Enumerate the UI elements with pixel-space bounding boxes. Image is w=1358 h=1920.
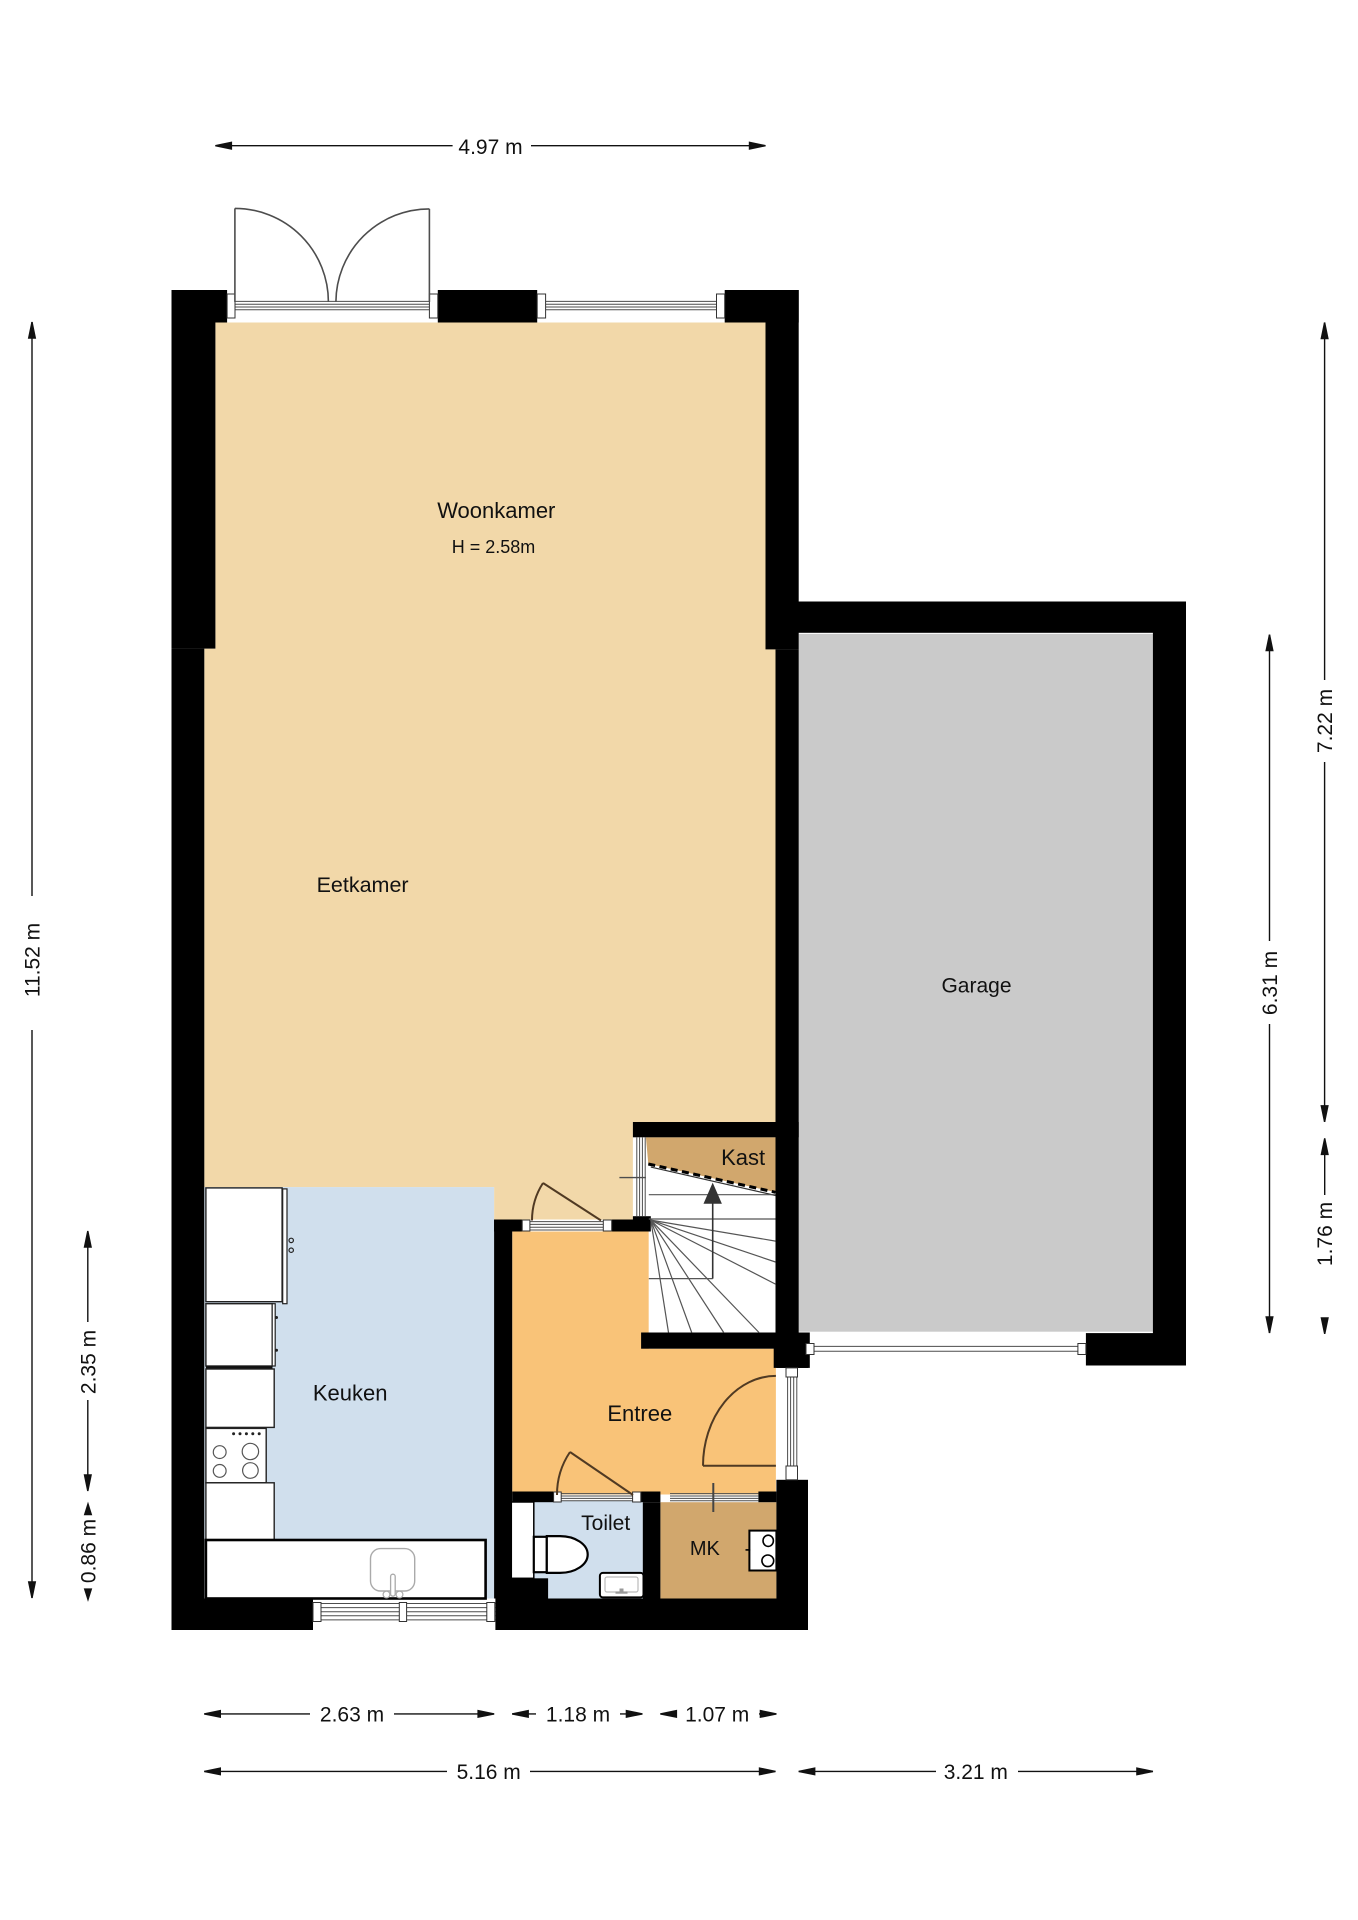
svg-text:Woonkamer: Woonkamer — [437, 498, 555, 523]
svg-text:3.21 m: 3.21 m — [944, 1761, 1008, 1784]
svg-text:MK: MK — [690, 1538, 721, 1560]
svg-text:11.52 m: 11.52 m — [22, 923, 45, 997]
svg-text:1.18 m: 1.18 m — [546, 1703, 610, 1726]
svg-text:Eetkamer: Eetkamer — [317, 873, 409, 897]
svg-text:4.97 m: 4.97 m — [458, 136, 522, 159]
svg-text:Keuken: Keuken — [313, 1381, 388, 1406]
svg-text:Kast: Kast — [721, 1145, 765, 1170]
svg-text:Entree: Entree — [607, 1401, 672, 1426]
svg-text:1.07 m: 1.07 m — [685, 1703, 749, 1726]
svg-text:0.86 m: 0.86 m — [78, 1519, 101, 1583]
svg-text:Toilet: Toilet — [581, 1512, 630, 1535]
svg-text:2.35 m: 2.35 m — [77, 1330, 100, 1394]
svg-text:H = 2.58m: H = 2.58m — [452, 537, 536, 557]
svg-text:2.63 m: 2.63 m — [320, 1703, 384, 1726]
svg-text:1.76 m: 1.76 m — [1314, 1202, 1337, 1266]
svg-text:7.22 m: 7.22 m — [1314, 689, 1337, 753]
svg-text:Garage: Garage — [941, 975, 1011, 998]
svg-text:6.31 m: 6.31 m — [1259, 951, 1282, 1015]
svg-text:5.16 m: 5.16 m — [457, 1761, 521, 1784]
